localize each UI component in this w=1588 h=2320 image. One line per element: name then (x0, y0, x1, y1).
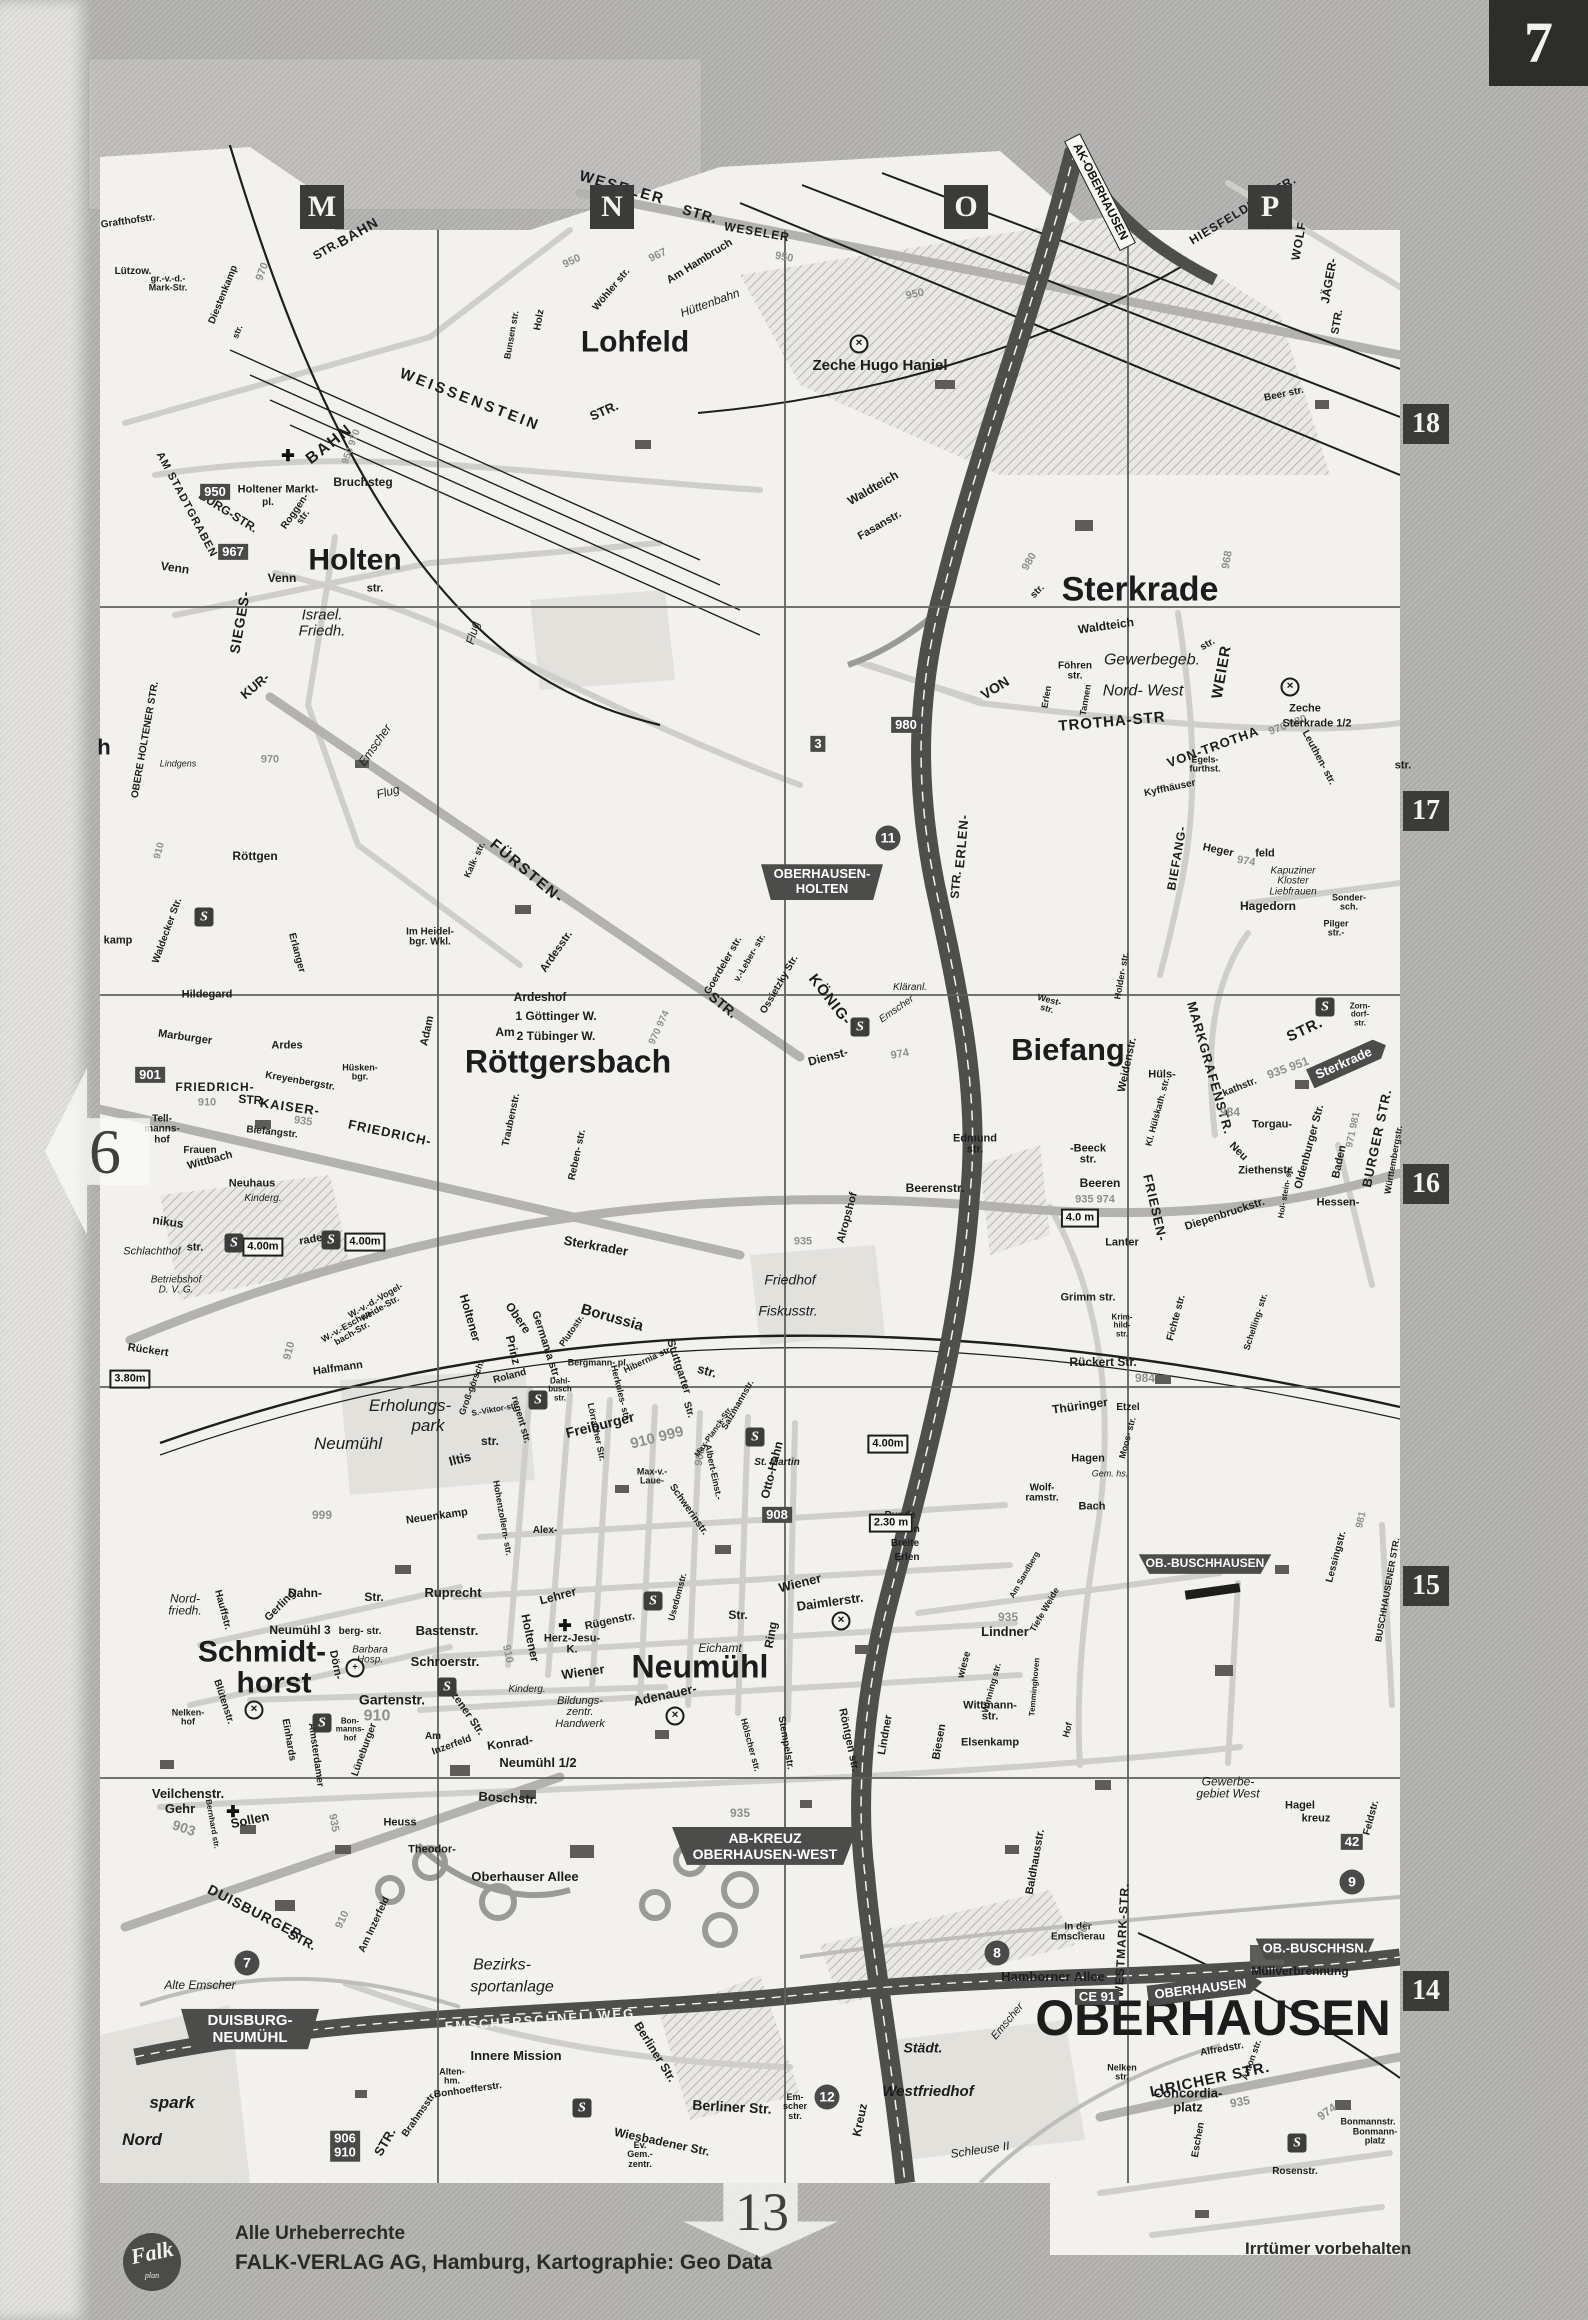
map-label: Hof (1062, 1722, 1075, 1739)
map-label: Venn (268, 572, 297, 584)
map-label: 903 (171, 1817, 198, 1838)
map-label: Traubenstr. (501, 1093, 522, 1148)
map-label: Alten-hm. (439, 2068, 465, 2087)
map-label: Schmidt- (198, 1636, 326, 1667)
route-badge: 7 (235, 1951, 260, 1976)
map-label: spark (149, 2094, 194, 2112)
map-label: Bon-manns-hof (336, 1718, 364, 1743)
road-number-plate: 908 (762, 1507, 792, 1523)
map-label: Am Hambruch (665, 237, 735, 287)
map-label: Friedhof (764, 1273, 815, 1288)
map-label: SIEGES- (227, 589, 252, 654)
map-label: pl. (262, 498, 274, 508)
map-label: Stempelstr. (775, 1716, 795, 1771)
map-label: JÄGER- (1319, 258, 1339, 305)
map-label: Sterkrade 1/2 (1282, 718, 1351, 729)
map-label: Gem. hs. (1092, 1469, 1129, 1478)
map-label: Neuenkamp (405, 1507, 468, 1527)
map-label: Wiener (561, 1662, 606, 1681)
map-label: Biefang (1011, 1034, 1125, 1066)
map-label: 935 (1229, 2094, 1251, 2110)
map-label: 968 (1221, 550, 1235, 570)
map-label: Bonmannstr. (1340, 2117, 1395, 2126)
map-label: FRIESEN- (1141, 1173, 1170, 1243)
map-label: Grafthofstr. (100, 213, 155, 231)
map-label: Rügenstr. (584, 1611, 636, 1633)
map-label: Bunsen str. (503, 310, 521, 360)
map-label: Leuthen- str. (1299, 729, 1336, 787)
map-label: Müllverbrennung (1251, 1965, 1348, 1977)
grid-row-label: 14 (1403, 1971, 1449, 2011)
falk-logo-text: Falk (119, 2227, 184, 2278)
map-label: str. (1199, 637, 1217, 654)
road-number-plate: 950 (200, 484, 230, 500)
map-label: Rückert (127, 1342, 169, 1359)
map-label: Bildungs-zentr.Handwerk (555, 1696, 605, 1730)
sbahn-icon: S (746, 1428, 765, 1447)
map-label: 999 (312, 1509, 332, 1521)
clearance-sign: 4.00m (344, 1233, 385, 1252)
map-label: Am Sandberg (1008, 1550, 1041, 1599)
map-label: Albert-Einst.- (703, 1443, 724, 1500)
map-label: Württembergstr. (1383, 1125, 1404, 1195)
map-label: Schwerinstr. (667, 1483, 710, 1538)
map-label: Hessen- (1317, 1197, 1360, 1208)
map-label: Kreuz (850, 2102, 869, 2137)
sbahn-icon: S (1288, 2134, 1307, 2153)
map-label: str. (187, 1242, 204, 1253)
direction-sign: AB-KREUZOBERHAUSEN-WEST (672, 1827, 858, 1865)
map-label: 950 (774, 251, 794, 265)
map-label: Konrad- (486, 1734, 533, 1753)
hospital-icon: + (346, 1659, 365, 1678)
prev-page-number[interactable]: 6 (89, 1115, 121, 1189)
map-label: Heger (1202, 842, 1235, 860)
map-label: Marburger (157, 1029, 212, 1048)
map-label: kamp (104, 935, 133, 946)
map-label: 974 (1315, 2101, 1339, 2123)
grid-row-label: 17 (1403, 791, 1449, 831)
map-label: Schroerstr. (411, 1655, 480, 1669)
map-label: Elsenkamp (961, 1737, 1019, 1748)
map-label: 910 (198, 1097, 216, 1108)
map-label: STR. (311, 238, 341, 262)
map-label: Emscher (356, 722, 393, 768)
map-label: 935 (293, 1115, 313, 1129)
sbahn-icon: S (529, 1391, 548, 1410)
map-label: Fasanstr. (856, 509, 904, 543)
map-label: Gewerbe-gebiet West (1196, 1776, 1259, 1801)
map-label: Theodor- (408, 1844, 456, 1855)
map-label: Str. (681, 1401, 696, 1420)
map-label: STR. (1330, 309, 1346, 336)
map-label: Ossietzky Str. (759, 954, 801, 1016)
map-label: Stuttgarter (664, 1338, 692, 1395)
map-label: Schleuse II (950, 2140, 1011, 2161)
map-label: STR. (681, 202, 720, 226)
direction-sign: AK-OBERHAUSEN (1064, 133, 1136, 250)
clearance-sign: 4.00m (867, 1435, 908, 1454)
map-label: Neumühl 1/2 (499, 1756, 576, 1770)
falk-logo: Falk plan (123, 2233, 181, 2291)
map-label: Oberhauser Allee (471, 1870, 578, 1884)
map-label: Bernhard str. (204, 1799, 221, 1849)
mine-icon: ✕ (245, 1701, 264, 1720)
clearance-sign: 2.30 m (869, 1514, 913, 1533)
map-label: Am (425, 1732, 441, 1742)
direction-sign: OB.-BUSCHHAUSEN (1139, 1554, 1272, 1574)
map-label: Concordia-platz (1154, 2086, 1223, 2113)
map-label: Usedomstr. (667, 1572, 689, 1622)
map-label: Lanter (1105, 1237, 1139, 1248)
clearance-sign: 3.80m (109, 1370, 150, 1389)
grid-row-label: 16 (1403, 1164, 1449, 1204)
map-label: 974 (1236, 855, 1256, 869)
sbahn-icon: S (851, 1018, 870, 1037)
map-label: Beer str. (1263, 386, 1304, 404)
map-label: Neuhaus (229, 1178, 275, 1189)
map-label: Holten (308, 544, 401, 575)
map-label: Ruprecht (424, 1586, 481, 1600)
map-label: Baldhausstr. (1025, 1828, 1048, 1895)
map-label: Germania str. (529, 1310, 562, 1380)
sbahn-icon: S (313, 1714, 332, 1733)
map-label: Erholungs- (369, 1397, 451, 1415)
map-label: Max-v.-Laue- (637, 1468, 667, 1487)
mine-icon: ✕ (850, 335, 869, 354)
mine-icon: ✕ (832, 1612, 851, 1631)
map-label: 935 (998, 1611, 1018, 1623)
map-label: 935 951 (1265, 1055, 1310, 1082)
map-label: Beerenstr. (906, 1182, 965, 1194)
map-label: Nelkenstr. (1107, 2064, 1137, 2083)
map-label: berg- str. (339, 1627, 382, 1637)
map-label: Hagen (1071, 1453, 1105, 1464)
map-label: Wolf-ramstr. (1025, 1484, 1058, 1505)
map-label: Kläranl. (893, 983, 927, 993)
map-label: Hagel (1285, 1800, 1315, 1811)
map-label: Str. (364, 1591, 383, 1603)
map-label: Lindner (981, 1625, 1029, 1639)
map-label: Etzel (1116, 1403, 1139, 1413)
map-label: Flug (464, 620, 482, 646)
map-label: Erlen (1040, 685, 1053, 709)
road-number-plate: 3 (810, 736, 825, 752)
map-label: str. (696, 1362, 718, 1380)
route-badge: 8 (985, 1941, 1010, 1966)
map-label: BetriebshofD. V. G. (151, 1276, 202, 1297)
map-label: Hölscher str. (738, 1717, 761, 1772)
map-label: Kyffhäuser (1143, 778, 1196, 799)
church-icon: ✚ (558, 1619, 571, 1635)
map-label: Kalk- str. (463, 841, 488, 879)
map-label: 970 (261, 754, 279, 765)
map-label: Neu (1227, 1141, 1250, 1164)
map-label: Städt. (904, 2041, 943, 2056)
map-label: Frauen (183, 1146, 216, 1156)
map-label: Röntgen str. (836, 1707, 861, 1772)
map-label: Dahn- (288, 1587, 322, 1599)
map-label: Rückert Str. (1069, 1356, 1136, 1368)
map-label: 910 999 (629, 1424, 685, 1452)
map-label: Dahl-buschstr. (548, 1378, 572, 1403)
map-label: Neumühl (632, 1650, 769, 1683)
map-label: STR. (949, 871, 964, 899)
map-label: Kinderg. (508, 1685, 545, 1695)
direction-sign: Sterkrade (1306, 1036, 1390, 1089)
map-label: Dienst- (807, 1046, 850, 1069)
map-label: Bonmann-platz (1353, 2128, 1398, 2147)
map-label: Blütenstr. (211, 1678, 235, 1725)
church-icon: ✚ (226, 1805, 239, 1821)
map-label: str. (231, 324, 245, 340)
copyright-line-2: FALK-VERLAG AG, Hamburg, Kartographie: G… (235, 2251, 772, 2275)
map-label: Dörn- (326, 1649, 343, 1680)
map-label: Innere Mission (470, 2049, 561, 2063)
map-label: Zeche (1289, 703, 1321, 714)
map-label: Tannen (1079, 684, 1094, 716)
road-number-plate: 967 (218, 544, 248, 560)
map-label: Rosenstr. (1272, 2167, 1318, 2177)
map-label: Reben- str. (568, 1129, 589, 1182)
map-label: Roggen-str. (280, 492, 320, 537)
map-label: Em-scherstr. (783, 2093, 807, 2121)
map-label: Diestenkamp (208, 264, 241, 326)
grid-column-label: P (1248, 185, 1292, 229)
map-label: Wöhler str. (591, 267, 632, 313)
map-label: Oldenburger Str. (1293, 1104, 1327, 1191)
map-label: Im Heidel-bgr. Wkl. (406, 928, 454, 949)
map-label: Hüttenbahn (679, 287, 742, 320)
map-label: Ev.Gem.-zentr. (627, 2141, 653, 2169)
page-number-badge[interactable]: 7 (1489, 0, 1588, 86)
map-label: 910 (334, 1909, 352, 1930)
map-label: Neumühl (314, 1435, 382, 1453)
map-label: gr.-v.-d.-Mark-Str. (149, 275, 188, 294)
map-label: BIEFANG- (1165, 825, 1189, 892)
map-label: BUSCHHAUSENER STR. (1374, 1537, 1402, 1643)
map-label: str. (367, 583, 384, 594)
map-label: 1 Göttinger W. (515, 1010, 596, 1022)
map-label: Sterkrader (563, 1234, 629, 1259)
map-overlay: Grafthofstr.Lützow.gr.-v.-d.-Mark-Str.Di… (0, 0, 1588, 2320)
map-label: ERLEN- (953, 813, 971, 868)
map-label: EMSCHERSCHNELLWEG (444, 2007, 635, 2034)
map-label: Israel.Friedh. (299, 607, 346, 638)
map-label: park (411, 1417, 444, 1435)
map-label: Grimm str. (1060, 1292, 1115, 1303)
map-label: Otto-Hahn (759, 1440, 785, 1500)
map-label: Kl. Hülskath. str. (1144, 1077, 1171, 1148)
map-label: Berliner Str. (632, 2020, 679, 2084)
map-label: Herz-Jesu-K. (544, 1634, 600, 1657)
map-label: Erlen (894, 1553, 919, 1563)
grid-column-label: M (300, 185, 344, 229)
map-label: VON (978, 674, 1011, 702)
map-label: 950 (561, 253, 582, 271)
map-label: Obere (503, 1300, 533, 1336)
map-label: WEIER (1210, 644, 1235, 700)
map-label: Schelling- str. (1242, 1292, 1269, 1351)
map-label: Alropshof (836, 1191, 860, 1244)
map-label: Adam (419, 1015, 437, 1047)
sbahn-icon: S (1316, 998, 1335, 1017)
map-label: Ring (763, 1621, 780, 1649)
map-label: Waldecker Str. (151, 897, 184, 965)
map-label: Holz (533, 309, 547, 332)
map-label: Lohfeld (581, 326, 689, 357)
map-label: Temminghoven (1028, 1657, 1041, 1716)
sbahn-icon: S (438, 1678, 457, 1697)
map-label: Waldteich (846, 469, 901, 508)
map-label: horst (237, 1667, 312, 1698)
map-label: Röttgen (232, 850, 277, 862)
map-label: Neumühl 3 (269, 1624, 330, 1636)
map-label: Lindgens (160, 759, 197, 768)
map-label: WOLF (1289, 221, 1308, 262)
map-label: Biefangstr. (246, 1125, 298, 1141)
map-label: Roland (492, 1368, 527, 1387)
map-label: Halfmann (312, 1360, 363, 1378)
road-number-plate: 42 (1341, 1834, 1363, 1850)
map-label: Boschstr. (478, 1790, 538, 1807)
map-label: Einhards (279, 1718, 297, 1762)
copyright-line-1: Alle Urheberrechte (235, 2223, 772, 2245)
map-label: KapuzinerKlosterLiebfrauen (1269, 866, 1316, 897)
map-label: Thüringer (1051, 1396, 1108, 1416)
map-label: Nord-friedh. (168, 1593, 201, 1618)
map-label: Daimlerstr. (796, 1591, 864, 1614)
mine-icon: ✕ (666, 1707, 685, 1726)
map-label: Torgau- (1252, 1119, 1292, 1130)
map-label: Am Inzerfeld (358, 1896, 393, 1955)
map-label: Gehr (165, 1802, 195, 1816)
map-label: 967 (647, 247, 668, 265)
disclaimer-text: Irrtümer vorbehalten (1245, 2239, 1445, 2259)
atlas-page: 7 (0, 0, 1588, 2320)
map-label: wiese (956, 1650, 973, 1679)
map-label: kathstr. (1222, 1077, 1259, 1100)
map-label: Brahmsstr. (401, 2091, 439, 2140)
map-label: Plutostr. (558, 1314, 586, 1349)
map-label: 981 (1355, 1511, 1369, 1529)
map-label: Heuss (383, 1817, 416, 1828)
map-label: Nelken-hof (172, 1709, 205, 1728)
map-label: feld (1255, 848, 1275, 859)
map-label: Hamborner Allee (1001, 1970, 1105, 1984)
clearance-sign: 4.00m (242, 1238, 283, 1257)
sbahn-icon: S (573, 2099, 592, 2118)
map-label: 935 (794, 1236, 812, 1247)
map-label: Borussia (579, 1302, 645, 1335)
map-label: Beeren (1080, 1177, 1121, 1189)
map-label: Feldstr. (1362, 1799, 1381, 1836)
map-label: Prinz (503, 1334, 522, 1365)
map-label: KUR- (238, 670, 272, 701)
map-label: Alte Emscher (164, 1979, 235, 1991)
map-label: Bruchsteg (333, 476, 392, 488)
map-label: sportanlage (470, 1980, 554, 1997)
map-label: Diepenbruckstr. (1184, 1197, 1267, 1234)
map-label: 910 (153, 842, 167, 861)
map-label: Adenauer- (632, 1682, 698, 1709)
map-label: Emscher (878, 994, 916, 1025)
map-label: str. (1395, 760, 1412, 771)
map-label: 984 (1220, 1106, 1240, 1118)
map-label: Venn (160, 560, 190, 576)
map-label: kreuz (1302, 1813, 1331, 1824)
map-label: Breite (891, 1539, 919, 1549)
map-label: Holder- str. (1113, 952, 1130, 1000)
map-label: nikus (152, 1214, 185, 1231)
map-label: Holtener (519, 1613, 541, 1663)
map-label: Hüsken-bgr. (342, 1064, 378, 1083)
map-label: Eschen (1191, 2122, 1207, 2159)
direction-sign: OB.-BUSCHHSN. (1256, 1939, 1375, 1960)
map-label: Hohenzollern- str. (491, 1480, 513, 1556)
map-label: Zeche Hugo Haniel (812, 358, 947, 374)
map-label: West-str. (1034, 993, 1062, 1017)
map-label: 970 974 (648, 1009, 673, 1046)
map-label: Lehrer (538, 1585, 577, 1607)
map-label: Iltis (447, 1450, 472, 1469)
map-label: Sterkrade (1062, 572, 1219, 607)
map-label: Kinderg. (244, 1194, 281, 1204)
map-label: Flug (375, 783, 401, 801)
map-label: Alex- (533, 1526, 557, 1536)
map-label: Ardesstr. (539, 929, 576, 975)
map-label: Pilgerstr.- (1323, 920, 1348, 939)
map-label: 935 974 (1075, 1194, 1115, 1205)
map-label: Ardes (271, 1040, 302, 1051)
map-label: STR. (588, 399, 621, 423)
direction-sign: OBERHAUSEN-HOLTEN (761, 864, 883, 900)
sbahn-icon: S (644, 1592, 663, 1611)
grid-column-label: O (944, 185, 988, 229)
map-label: Wittmann-str. (963, 1701, 1017, 1724)
next-page-number[interactable]: 13 (735, 2181, 789, 2243)
map-label: Westfriedhof (882, 2084, 973, 2100)
map-label: Gartenstr. (359, 1693, 425, 1708)
map-label: Berliner Str. (692, 2098, 772, 2117)
map-label: KAISER- (259, 1096, 321, 1118)
road-number-plate: CE 91 (1075, 1989, 1119, 2005)
map-label: Fichte str. (1166, 1294, 1188, 1342)
map-label: Bastenstr. (416, 1624, 479, 1638)
map-label: WESTMARK-STR. (1113, 1882, 1131, 1997)
map-label: str. (481, 1435, 499, 1447)
grid-row-label: 18 (1403, 404, 1449, 444)
map-label: 935 (730, 1807, 750, 1819)
map-label: Nord- West (1103, 684, 1184, 701)
church-icon: ✚ (281, 449, 294, 465)
route-badge: 9 (1340, 1870, 1365, 1895)
sbahn-icon: S (195, 908, 214, 927)
map-label: Kreyenbergstr. (264, 1071, 335, 1093)
map-label: Egels-furthst. (1190, 756, 1221, 775)
sbahn-icon: S (322, 1231, 341, 1250)
map-label: TROTHA-STR (1058, 710, 1166, 735)
route-badge: 11 (876, 826, 901, 851)
map-label: STR. (372, 2126, 399, 2158)
map-label: Am (495, 1026, 514, 1038)
map-label: Gewerbegeb. (1104, 653, 1200, 670)
map-label: Veilchenstr. (152, 1787, 224, 1801)
mine-icon: ✕ (1281, 678, 1300, 697)
map-label: 2 Tübinger W. (517, 1030, 596, 1042)
map-label: Eichamt (698, 1642, 741, 1654)
sbahn-icon: S (225, 1234, 244, 1253)
